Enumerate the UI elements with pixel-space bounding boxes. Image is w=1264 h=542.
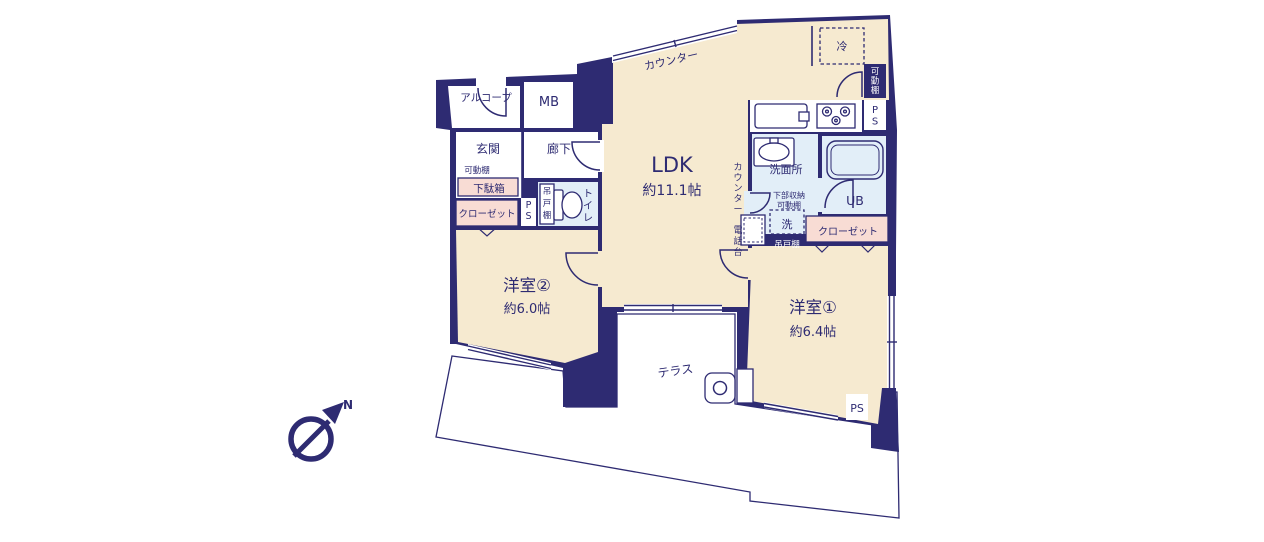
washroom-opening — [744, 191, 754, 215]
washroom-shelf-label: 可動棚 — [777, 200, 801, 210]
washing-machine-label: 洗 — [782, 218, 793, 231]
bedroom1-area-label: 約6.4帖 — [790, 325, 837, 340]
toilet-shelf-label: 吊戸棚 — [543, 187, 552, 221]
floorplan-canvas: アルコープ MB 玄関 可動棚 下駄箱 クローゼット 廊下 PS 吊戸棚 トイレ… — [0, 0, 1264, 542]
bedroom2-floor — [456, 230, 598, 363]
bathroom-label: UB — [846, 193, 864, 208]
bedroom1-opening — [742, 248, 754, 280]
window-bedroom1-right — [887, 296, 897, 388]
ps-kitchen-label: PS — [872, 105, 878, 128]
toilet-icon — [554, 190, 582, 220]
bedroom2-area-label: 約6.0帖 — [504, 302, 551, 317]
closet-entrance-label: クローゼット — [458, 208, 515, 220]
bedroom1-label: 洋室① — [789, 298, 837, 317]
kitchen-sink-icon — [755, 104, 809, 128]
stove-icon — [817, 104, 855, 128]
floorplan-drawing: アルコープ MB 玄関 可動棚 下駄箱 クローゼット 廊下 PS 吊戸棚 トイレ… — [0, 0, 1264, 542]
ldk-label: LDK — [651, 153, 694, 177]
entrance-label: 玄関 — [476, 141, 500, 156]
shoe-box-label: 下駄箱 — [473, 182, 505, 195]
washroom-hanging-label: 吊戸棚 — [774, 239, 800, 250]
bath-opening — [816, 178, 824, 212]
counter-hall-label: カウンター — [733, 162, 742, 215]
closet-bedroom1-label: クローゼット — [818, 226, 878, 238]
ldk-area-label: 約11.1帖 — [642, 183, 701, 199]
hallway-ldk-opening — [594, 140, 604, 172]
phone-stand-label: 電話台 — [733, 225, 742, 258]
ps-bedroom1-label: PS — [850, 402, 864, 415]
toilet-label: トイレ — [583, 189, 593, 224]
compass-icon: N — [291, 398, 353, 459]
meter-box-label: MB — [539, 95, 559, 110]
bedroom2-label: 洋室② — [503, 276, 551, 295]
window-ldk-terrace — [624, 304, 722, 312]
alcove-label: アルコープ — [460, 92, 512, 104]
washroom-label: 洗面所 — [770, 163, 803, 176]
hallway-label: 廊下 — [547, 141, 571, 156]
phone-stand-counter — [741, 215, 765, 245]
entrance-door-opening — [476, 74, 506, 88]
kitchen-shelf-label: 可動棚 — [871, 67, 880, 96]
compass-north-label: N — [343, 398, 353, 412]
lower-storage-label: 下部収納 — [773, 190, 805, 200]
entrance-shelf-label: 可動棚 — [464, 165, 490, 176]
refrigerator-label: 冷 — [837, 40, 848, 53]
ps-hallway-label: PS — [525, 200, 531, 222]
terrace-sink-icon — [705, 369, 753, 403]
washbasin-icon — [754, 138, 794, 166]
bedroom2-opening — [594, 251, 604, 287]
